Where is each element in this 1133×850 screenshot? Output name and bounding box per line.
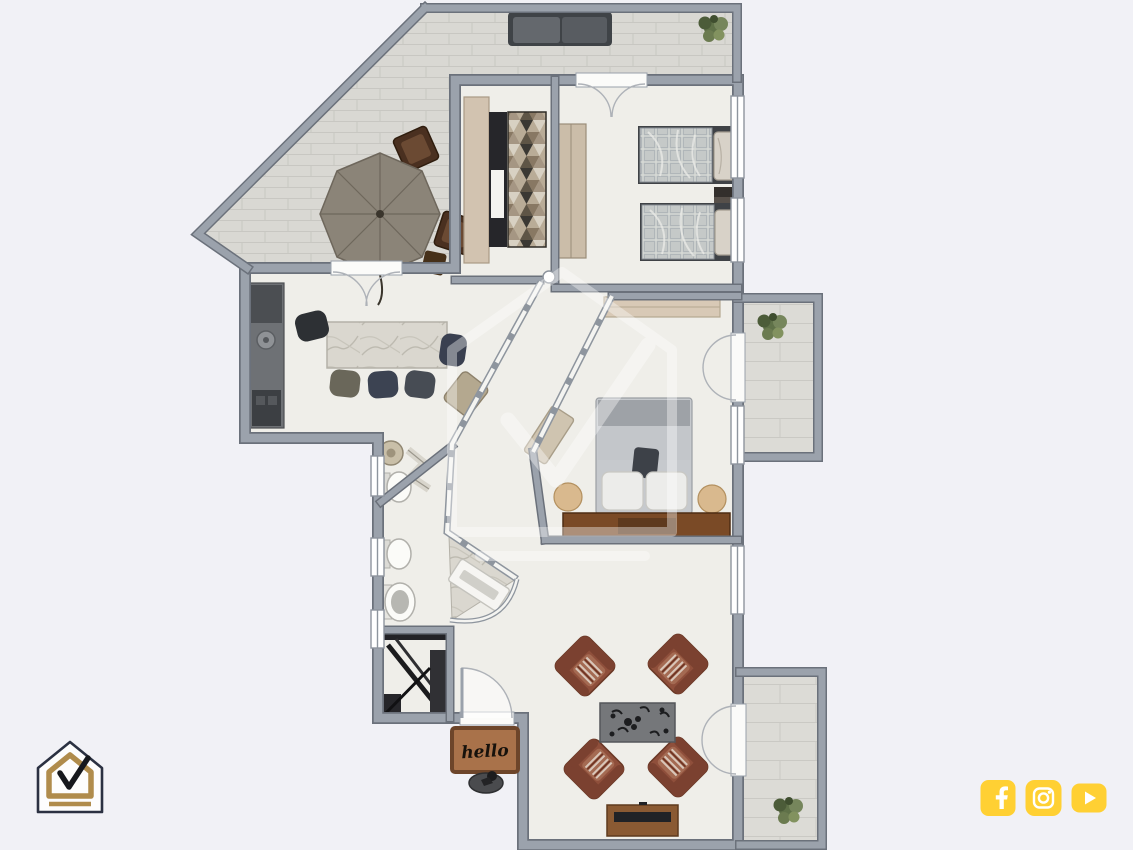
decor-object <box>469 771 503 793</box>
dining-chair <box>403 369 436 399</box>
floral-rug <box>600 703 675 742</box>
pouf <box>554 483 582 511</box>
outdoor-sofa <box>508 12 612 46</box>
floor-plan-page: hello <box>0 0 1133 850</box>
walk-in-closet <box>464 97 546 263</box>
marble-dining-table <box>327 322 447 368</box>
social-links <box>980 779 1107 817</box>
tall-cabinet <box>464 97 489 263</box>
pouf <box>698 485 726 513</box>
twin-bed-2 <box>640 203 738 261</box>
kitchen-counter <box>248 283 284 428</box>
dining-chair <box>367 370 399 399</box>
double-bed <box>596 398 692 514</box>
doormat-text: hello <box>461 741 509 763</box>
dining-chair <box>329 369 362 399</box>
twin-bed-1 <box>638 126 738 184</box>
entrance-outside: hello <box>452 728 518 793</box>
youtube-icon[interactable] <box>1071 783 1107 813</box>
floorplan-svg: hello <box>0 0 1133 850</box>
house-check-logo <box>34 738 106 816</box>
geometric-rug <box>508 112 546 247</box>
instagram-icon[interactable] <box>1025 779 1062 817</box>
tv-console <box>607 802 678 836</box>
facebook-icon[interactable] <box>980 779 1016 817</box>
